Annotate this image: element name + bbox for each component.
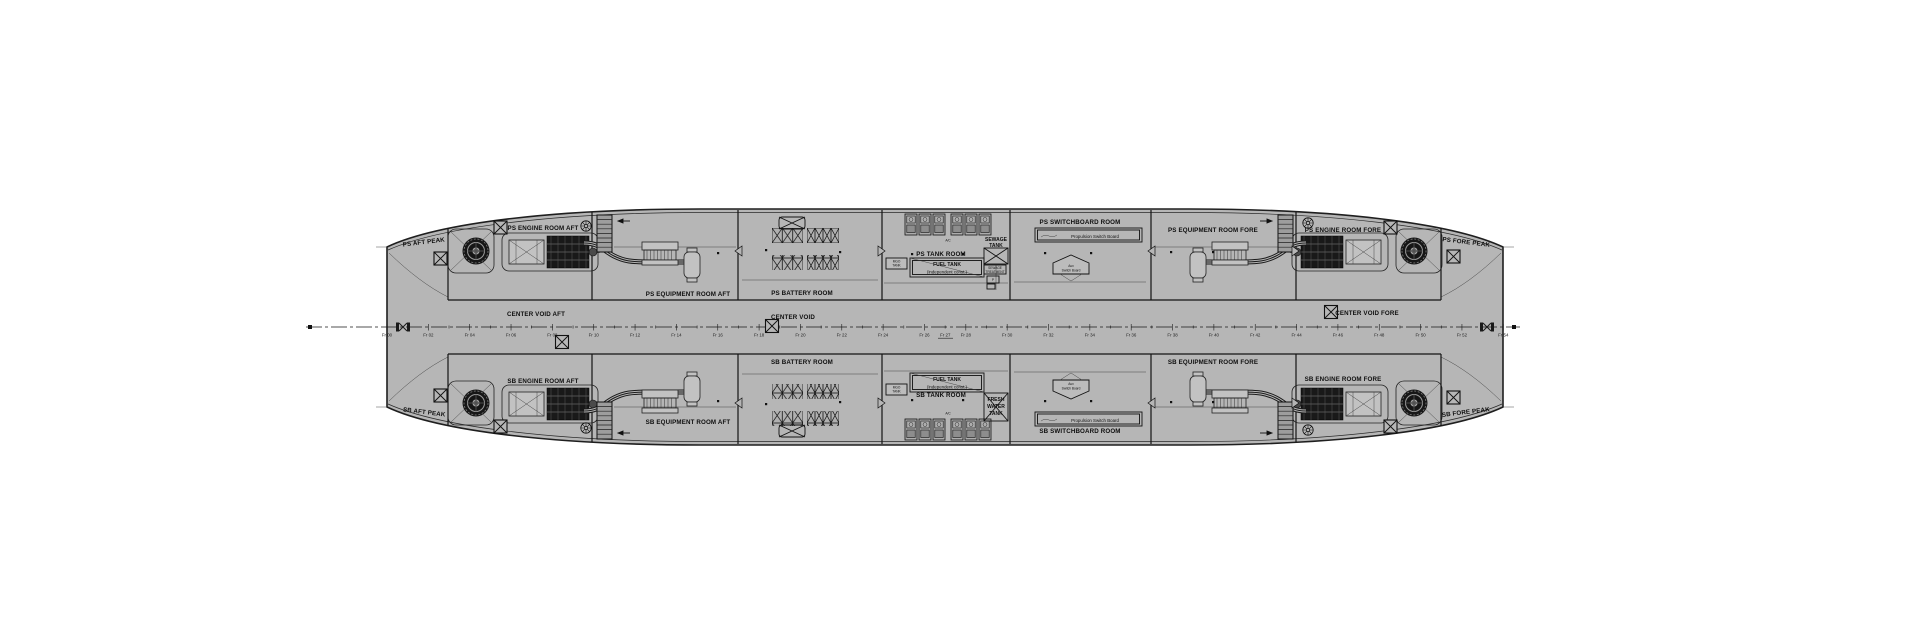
fan-icon-sb-aft [581,423,591,433]
room-label-sb-tank: SB TANK ROOM [916,392,966,399]
svg-text:FRESH: FRESH [988,397,1005,403]
svg-text:Switch Board: Switch Board [1062,269,1081,273]
room-label-sb-battery: SB BATTERY ROOM [771,359,833,366]
hatch-icon-sb-aft-peak [434,389,447,402]
hatch-icon-ps-aft-peak [434,252,447,265]
frame-label: Fr 14 [671,333,682,338]
frame-label: Fr 18 [754,333,765,338]
ac-label-ps: A/C [945,239,951,243]
svg-text:WATER: WATER [987,404,1005,410]
midship-frame-label: Fr 27 [940,333,951,338]
stairs-icon-ps-fore [1278,215,1293,252]
fresh-water-tank: FRESH WATER TANK [984,393,1008,421]
svg-text:Aux: Aux [1068,264,1074,268]
hatch-icon-sb-engine-aft [494,420,507,433]
frame-label: Fr 30 [1002,333,1013,338]
svg-text:Switch Board: Switch Board [1062,387,1081,391]
frame-label: Fr 38 [1167,333,1178,338]
room-label-ps-tank: PS TANK ROOM [916,251,965,258]
svg-text:TANK: TANK [892,264,901,268]
frame-label: Fr 24 [878,333,889,338]
centerline-fore-marker [1512,325,1516,329]
frame-label: Fr 06 [506,333,517,338]
svg-text:Aux: Aux [1068,382,1074,386]
svg-text:TANK: TANK [892,390,901,394]
room-label-ps-equip-aft: PS EQUIPMENT ROOM AFT [646,291,730,298]
pump-label: P [992,278,994,282]
svg-text:TREATMENT: TREATMENT [985,270,1004,274]
room-label-ps-engine-fore: PS ENGINE ROOM FORE [1305,227,1381,234]
small-tank-ps: MGO TANK [886,258,907,269]
drawing-canvas: Fr 00Fr 02Fr 04Fr 06Fr 08Fr 10Fr 12Fr 14… [0,0,1920,620]
frame-label: Fr 42 [1250,333,1261,338]
frame-label: Fr 28 [961,333,972,338]
ship-deck-plan: Fr 00Fr 02Fr 04Fr 06Fr 08Fr 10Fr 12Fr 14… [0,0,1920,620]
small-tank-sb: MGO TANK [886,384,907,395]
room-label-center-void: CENTER VOID [771,314,815,321]
silencer-icon-ps-fore [1190,248,1206,282]
frame-label: Fr 22 [837,333,848,338]
frame-label: Fr 36 [1126,333,1137,338]
svg-text:TANK: TANK [989,411,1003,417]
hatch-icon-center-void-aft [556,336,569,349]
stairs-icon-ps-aft [597,215,612,252]
frame-label: Fr 12 [630,333,641,338]
frame-label: Fr 20 [795,333,806,338]
stairs-icon-sb-aft [597,402,612,439]
room-label-sb-equip-fore: SB EQUIPMENT ROOM FORE [1168,359,1258,366]
frame-label: Fr 00 [382,333,393,338]
fuel-tank-label: FUEL TANK [933,262,961,268]
fan-icon-ps-aft [581,221,591,231]
stairs-icon-sb-fore [1278,402,1293,439]
room-label-sb-equip-aft: SB EQUIPMENT ROOM AFT [646,419,731,426]
room-label-ps-engine-aft: PS ENGINE ROOM AFT [508,225,579,232]
frame-label: Fr 46 [1333,333,1344,338]
frame-label: Fr 32 [1043,333,1054,338]
room-label-ps-battery: PS BATTERY ROOM [771,290,833,297]
room-label-sb-engine-fore: SB ENGINE ROOM FORE [1305,376,1382,383]
fan-icon-sb-fore [1303,425,1313,435]
silencer-icon-sb-aft [684,372,700,406]
svg-text:Propulsion Switch Board: Propulsion Switch Board [1071,234,1119,239]
frame-label: Fr 16 [713,333,724,338]
room-label-ps-switchboard: PS SWITCHBOARD ROOM [1040,219,1121,226]
svg-text:Propulsion Switch Board: Propulsion Switch Board [1071,418,1119,423]
fuel-tank-sublabel: (independent const.) [927,270,968,275]
room-label-ps-equip-fore: PS EQUIPMENT ROOM FORE [1168,227,1258,234]
silencer-icon-sb-fore [1190,372,1206,406]
hatch-icon-ps-engine-aft [494,221,507,234]
hatch-icon-center-void [766,320,779,333]
room-label-sb-switchboard: SB SWITCHBOARD ROOM [1039,428,1120,435]
frame-label: Fr 34 [1085,333,1096,338]
frame-label: Fr 52 [1457,333,1468,338]
hatch-icon-sb-engine-fore [1384,420,1397,433]
room-label-center-void-aft: CENTER VOID AFT [507,311,565,318]
frame-label: Fr 48 [1374,333,1385,338]
frame-label: Fr 02 [423,333,434,338]
frame-label: Fr 40 [1209,333,1220,338]
room-label-sb-engine-aft: SB ENGINE ROOM AFT [507,378,578,385]
frame-label: Fr 26 [919,333,930,338]
hatch-icon-ps-engine-fore [1384,221,1397,234]
fuel-tank-label: FUEL TANK [933,377,961,383]
hatch-icon-ps-fore-peak [1447,250,1460,263]
centerline-aft-marker [308,325,312,329]
frame-label: Fr 54 [1498,333,1509,338]
fuel-tank-sublabel: (independent const.) [927,385,968,390]
room-label-center-void-fore: CENTER VOID FORE [1335,310,1399,317]
frame-label: Fr 50 [1415,333,1426,338]
frame-label: Fr 10 [589,333,600,338]
frame-label: Fr 04 [465,333,476,338]
frame-label: Fr 44 [1291,333,1302,338]
silencer-icon-ps-aft [684,248,700,282]
ac-label-sb: A/C [945,412,951,416]
hatch-icon-sb-fore-peak [1447,391,1460,404]
